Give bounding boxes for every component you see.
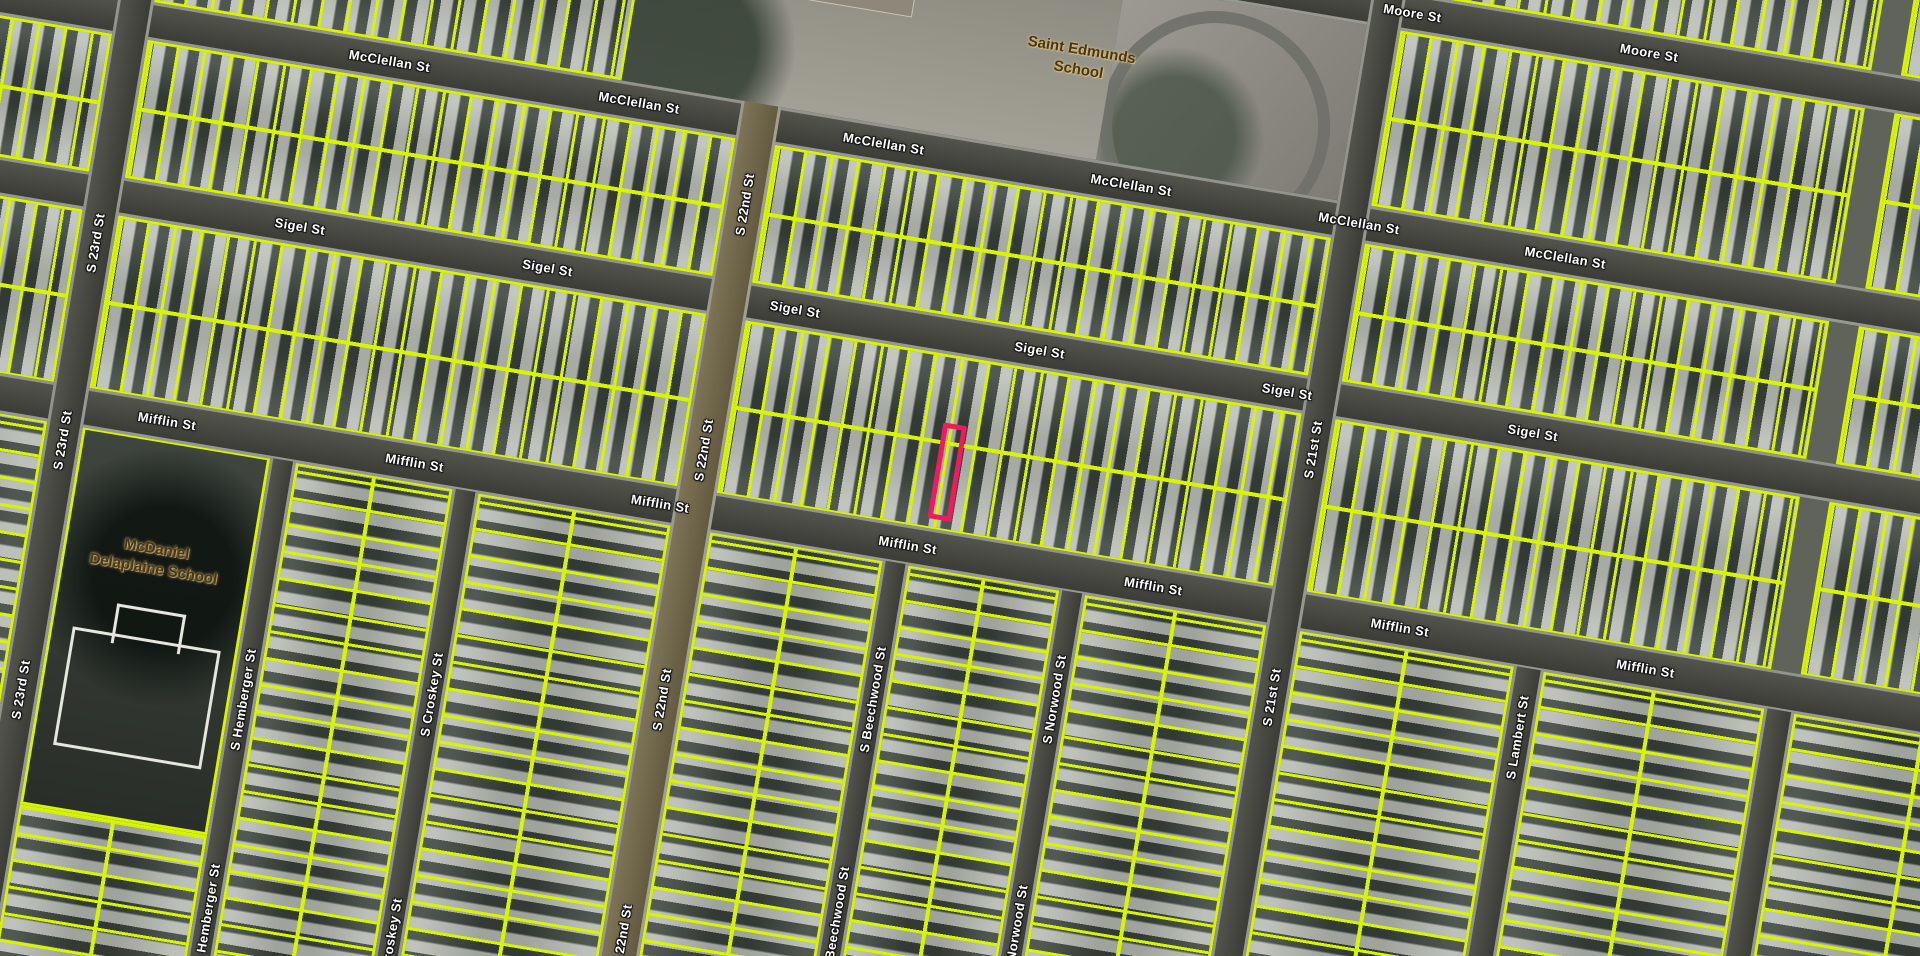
map-viewport: Saint Edmunds School McDaniel Delaplaine…	[0, 0, 1920, 956]
school-building	[655, 0, 922, 18]
map-canvas[interactable]: Saint Edmunds School McDaniel Delaplaine…	[0, 0, 1920, 956]
school-building	[53, 626, 221, 769]
